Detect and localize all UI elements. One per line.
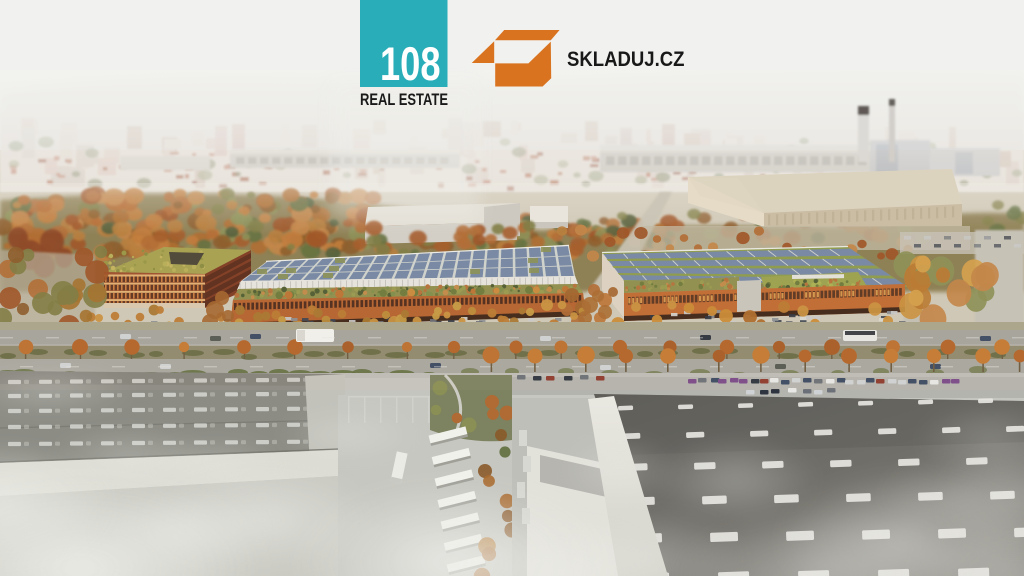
svg-text:REAL ESTATE: REAL ESTATE xyxy=(360,90,448,109)
svg-text:108: 108 xyxy=(380,37,441,90)
svg-text:SKLADUJ.CZ: SKLADUJ.CZ xyxy=(567,46,685,71)
